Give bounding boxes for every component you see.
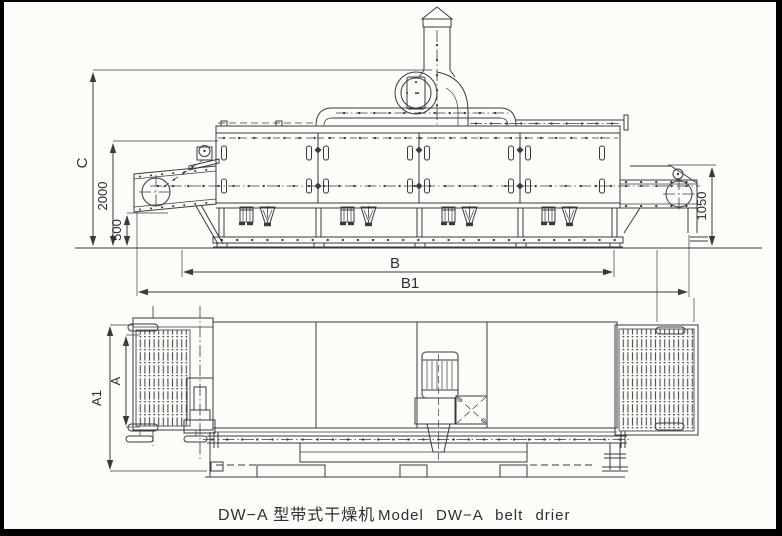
discharge-belt-plan	[615, 325, 698, 435]
base-frame	[213, 208, 623, 247]
title-chinese: DW−A 型带式干燥机	[218, 506, 375, 524]
duct-end-flange	[624, 115, 628, 130]
feed-support-strut	[196, 206, 218, 244]
elevation-view: C 2000 500	[74, 7, 762, 322]
dim-label-1050: 1050	[694, 192, 709, 221]
mesh-belt-hatch	[136, 330, 190, 426]
dim-label-500: 500	[109, 219, 124, 241]
discharge-pipe-plan	[602, 443, 628, 471]
base-foot	[400, 465, 427, 477]
caption: DW−A 型带式干燥机 Model DW−A belt drier	[218, 506, 570, 524]
dim-label-c: C	[74, 157, 91, 168]
heater-box	[300, 443, 527, 462]
fan-motor-plan	[415, 352, 487, 460]
roof-band	[216, 126, 620, 133]
dim-belt-width: A	[108, 335, 140, 427]
damper-box	[456, 396, 487, 424]
dim-overall-length: B1	[139, 235, 689, 297]
plan-view: A A1	[89, 306, 698, 477]
circulation-units	[239, 206, 577, 226]
belt-drier-drawing: C 2000 500	[0, 0, 782, 536]
feed-belt-plan	[126, 306, 215, 460]
dim-body-length: B	[182, 250, 614, 277]
heating-pipe-plan	[203, 431, 632, 477]
stack-cap	[422, 7, 452, 19]
title-english: Model DW−A belt drier	[378, 507, 570, 524]
scanned-drawing-page: C 2000 500	[0, 0, 782, 536]
roof-duct	[218, 108, 628, 130]
dim-label-a1: A1	[89, 390, 104, 406]
dim-label-2000: 2000	[95, 182, 110, 211]
feed-conveyor	[134, 146, 223, 297]
base-foot	[257, 465, 325, 477]
mesh-belt-hatch	[619, 329, 694, 431]
dryer-body	[150, 126, 700, 247]
dim-clearance-height: 500	[109, 213, 168, 245]
base-foot	[500, 465, 527, 477]
dim-label-b: B	[390, 255, 400, 272]
body-shell	[216, 133, 620, 203]
dim-label-b1: B1	[401, 275, 419, 292]
